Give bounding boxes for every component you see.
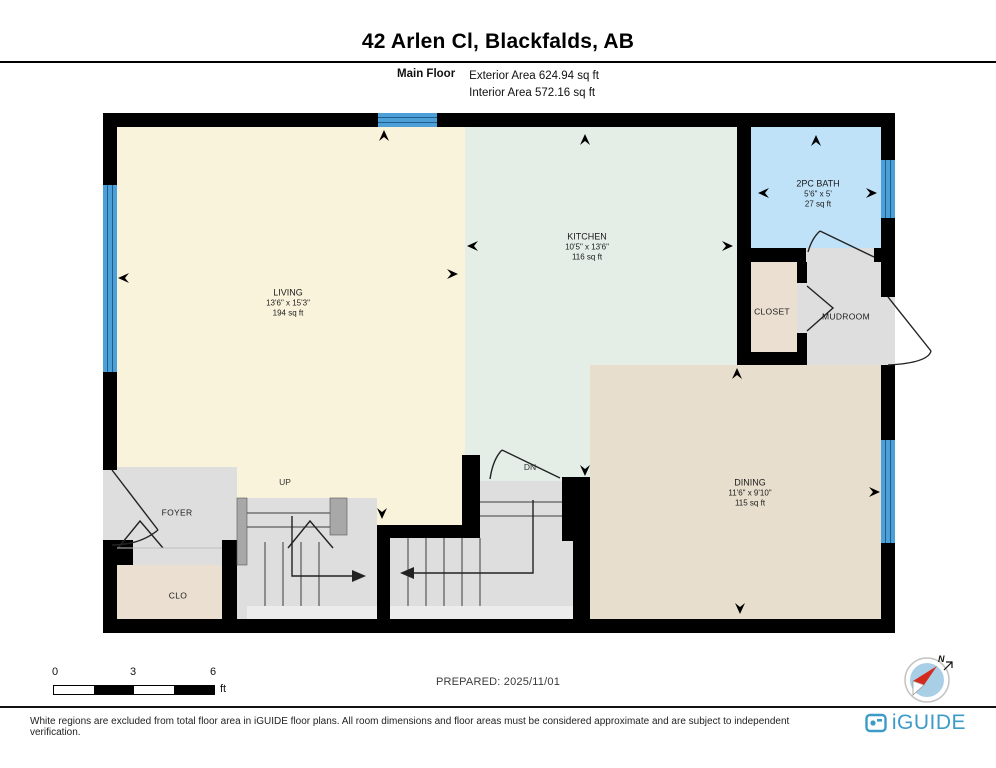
bath-dims: 5'6" x 5': [796, 190, 839, 200]
iguide-logo-icon: [864, 711, 888, 735]
kitchen-dims: 10'5" x 13'6": [565, 243, 609, 253]
living-name: LIVING: [266, 287, 310, 298]
stairs-up-label: UP: [279, 477, 291, 487]
bath-name: 2PC BATH: [796, 178, 839, 189]
footer-disclaimer: White regions are excluded from total fl…: [30, 716, 790, 738]
room-fills: [103, 127, 895, 619]
stairs-down-label: DN: [524, 462, 536, 472]
dining-area: 115 sq ft: [728, 499, 771, 509]
room-label-clo: CLO: [169, 591, 187, 602]
room-label-mudroom: MUDROOM: [822, 312, 870, 323]
room-label-foyer: FOYER: [162, 508, 193, 519]
compass-north-label: N: [938, 654, 945, 664]
room-label-closet: CLOSET: [754, 307, 790, 318]
floorplan-drawing: [0, 0, 996, 768]
room-label-living: LIVING 13'6" x 15'3" 194 sq ft: [266, 287, 310, 318]
iguide-logo-text: iGUIDE: [892, 711, 966, 735]
room-label-dining: DINING 11'6" x 9'10" 115 sq ft: [728, 477, 771, 508]
iguide-logo: iGUIDE: [864, 711, 966, 735]
dining-dims: 11'6" x 9'10": [728, 489, 771, 499]
living-area: 194 sq ft: [266, 309, 310, 319]
bath-area: 27 sq ft: [796, 200, 839, 210]
living-dims: 13'6" x 15'3": [266, 299, 310, 309]
compass: N: [898, 652, 968, 708]
kitchen-name: KITCHEN: [565, 231, 609, 242]
room-label-kitchen: KITCHEN 10'5" x 13'6" 116 sq ft: [565, 231, 609, 262]
prepared-date: PREPARED: 2025/11/01: [0, 676, 996, 688]
room-label-bath: 2PC BATH 5'6" x 5' 27 sq ft: [796, 178, 839, 209]
dining-name: DINING: [728, 477, 771, 488]
kitchen-area: 116 sq ft: [565, 253, 609, 263]
footer: White regions are excluded from total fl…: [0, 708, 996, 748]
